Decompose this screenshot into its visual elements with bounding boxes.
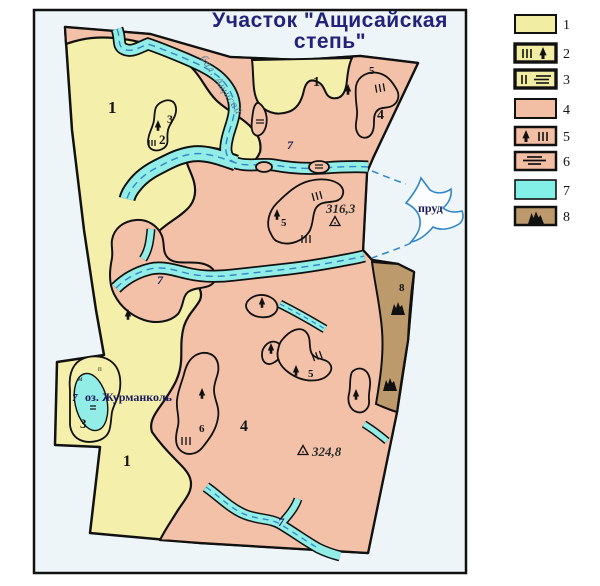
stream-label-7c: 7 [278,515,285,529]
region-label-5b: 5 [281,217,287,229]
legend-label-8: 8 [563,210,570,225]
legend-swatch-4 [515,99,556,118]
map-page: 1 1 1 2 3 3 4 4 5 5 5 6 8 7 7 7 7 бал. А… [0,0,600,586]
region-label-3a: 3 [167,112,173,126]
title-line-2: степь" [294,30,366,53]
region-label-6: 6 [199,423,205,435]
stream-label-7b: 7 [157,273,164,287]
legend-label-2: 2 [563,47,570,62]
lake-name-label: оз. Журманколь [85,390,173,404]
legend-row-4: 4 [515,99,570,118]
region-label-1a: 1 [108,98,117,117]
legend-row-8: 8 [515,207,570,225]
mark-m: м [78,375,83,383]
region-label-2: 2 [159,132,166,147]
region-label-1c: 1 [123,453,131,470]
legend-row-6: 6 [515,152,570,170]
mark-p: п [98,365,102,373]
stream-label-7a: 7 [287,138,294,152]
elevation-label-316: 316,3 [325,201,356,216]
legend-label-1: 1 [563,18,570,33]
pond-label: пруд [418,201,443,215]
region-label-4a: 4 [377,108,384,123]
legend-swatch-7 [515,180,556,199]
legend-row-2: 2 [515,44,570,62]
legend: 1 2 3 4 5 6 [515,15,570,225]
region-label-4b: 4 [240,418,248,435]
blob-tree-small-b [348,369,370,413]
blob-teardrop-6 [252,103,267,136]
legend-row-5: 5 [515,127,570,145]
legend-label-3: 3 [563,73,570,88]
legend-row-1: 1 [515,15,570,33]
title-line-1: Участок "Ащисайская [212,9,448,32]
island-plain [256,162,272,172]
legend-label-6: 6 [563,155,570,170]
elevation-label-324: 324,8 [311,444,342,459]
region-label-5c: 5 [308,368,314,380]
legend-label-4: 4 [563,103,570,118]
legend-row-3: 3 [515,70,570,88]
region-label-1b: 1 [313,75,320,90]
lake-label-7d: 7 [72,392,78,404]
region-label-5a: 5 [369,65,375,77]
legend-label-7: 7 [563,184,570,199]
legend-swatch-2 [515,44,556,62]
island-hatch [309,161,329,173]
legend-label-5: 5 [563,130,570,145]
map-canvas: 1 1 1 2 3 3 4 4 5 5 5 6 8 7 7 7 7 бал. А… [0,0,600,586]
region-label-8: 8 [399,282,405,294]
legend-swatch-5 [515,127,556,145]
legend-swatch-1 [515,15,556,33]
region-label-3b: 3 [80,416,87,431]
legend-row-7: 7 [515,180,570,199]
